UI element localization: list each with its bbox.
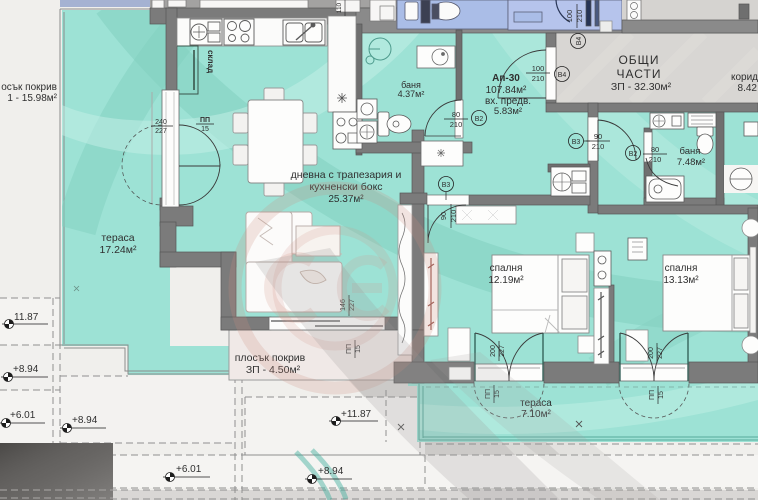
svg-text:В4: В4 (576, 37, 583, 46)
svg-text:227: 227 (155, 128, 167, 135)
svg-text:ПП: ПП (200, 117, 210, 124)
svg-text:ПП: ПП (649, 390, 656, 400)
svg-text:15: 15 (658, 391, 665, 399)
svg-text:тераса: тераса (101, 232, 134, 244)
svg-text:осък покрив: осък покрив (1, 82, 57, 93)
svg-text:1 - 15.98м²: 1 - 15.98м² (7, 93, 57, 104)
svg-text:90: 90 (594, 132, 602, 141)
svg-text:100: 100 (565, 10, 574, 23)
svg-text:210: 210 (575, 10, 584, 23)
svg-text:80: 80 (651, 145, 659, 154)
svg-text:210: 210 (532, 74, 545, 83)
svg-text:12.19м²: 12.19м² (488, 275, 524, 286)
svg-text:107.84м²: 107.84м² (486, 85, 527, 96)
svg-text:В3: В3 (442, 182, 451, 189)
svg-text:227: 227 (657, 347, 664, 359)
svg-text:баня: баня (680, 146, 701, 157)
svg-text:ОБЩИ: ОБЩИ (618, 53, 659, 67)
svg-text:+11.87: +11.87 (341, 409, 372, 420)
svg-text:11.87: 11.87 (14, 312, 39, 323)
svg-text:+8.94: +8.94 (13, 364, 39, 375)
svg-text:дневна с трапезария и: дневна с трапезария и (291, 169, 402, 181)
svg-text:В4: В4 (558, 72, 567, 79)
svg-text:227: 227 (499, 345, 506, 357)
svg-text:200: 200 (648, 347, 655, 359)
svg-text:13.13м²: 13.13м² (663, 275, 699, 286)
svg-text:80: 80 (452, 110, 460, 119)
svg-text:8.42: 8.42 (738, 83, 758, 94)
svg-text:15: 15 (201, 126, 209, 133)
svg-text:17.24м²: 17.24м² (100, 244, 137, 256)
svg-text:210: 210 (592, 142, 605, 151)
svg-text:+8.94: +8.94 (72, 415, 98, 426)
svg-text:+8.94: +8.94 (318, 466, 344, 477)
svg-text:210: 210 (450, 120, 463, 129)
svg-text:240: 240 (155, 119, 167, 126)
svg-text:110: 110 (336, 2, 343, 13)
svg-text:спалня: спалня (490, 263, 523, 274)
svg-text:+6.01: +6.01 (10, 410, 36, 421)
svg-text:210: 210 (649, 155, 662, 164)
svg-text:4.37м²: 4.37м² (398, 89, 425, 99)
svg-text:склад: склад (206, 50, 215, 73)
svg-text:ЗП - 32.30м²: ЗП - 32.30м² (611, 81, 672, 93)
svg-text:5.83м²: 5.83м² (494, 106, 522, 117)
svg-text:90: 90 (439, 212, 448, 220)
svg-text:210: 210 (449, 210, 458, 223)
svg-text:В2: В2 (629, 151, 638, 158)
svg-text:200: 200 (490, 345, 497, 357)
svg-text:+6.01: +6.01 (176, 464, 202, 475)
svg-text:В3: В3 (572, 139, 581, 146)
svg-text:В2: В2 (475, 116, 484, 123)
svg-text:спалня: спалня (665, 263, 698, 274)
svg-text:корид: корид (731, 72, 758, 83)
svg-text:100: 100 (532, 64, 545, 73)
svg-text:Ап-30: Ап-30 (492, 73, 520, 84)
svg-text:7.48м²: 7.48м² (677, 157, 705, 168)
svg-text:ЧАСТИ: ЧАСТИ (617, 67, 662, 81)
